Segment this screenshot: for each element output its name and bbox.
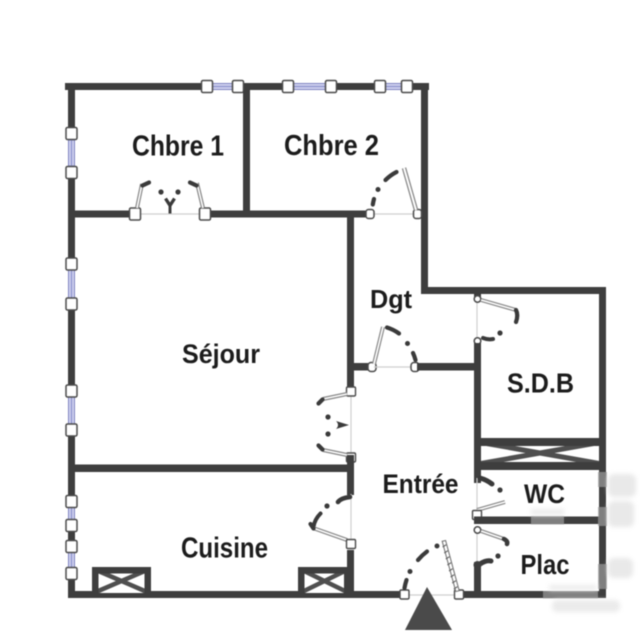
svg-text:S.D.B: S.D.B bbox=[507, 368, 574, 399]
svg-text:Entrée: Entrée bbox=[383, 469, 459, 499]
svg-text:WC: WC bbox=[524, 479, 565, 509]
svg-text:Dgt: Dgt bbox=[370, 284, 412, 314]
svg-text:Chbre 1: Chbre 1 bbox=[132, 131, 224, 163]
svg-text:Chbre 2: Chbre 2 bbox=[284, 130, 379, 162]
svg-text:Plac: Plac bbox=[521, 549, 570, 580]
svg-text:Cuisine: Cuisine bbox=[181, 533, 268, 565]
svg-text:Séjour: Séjour bbox=[182, 339, 260, 369]
